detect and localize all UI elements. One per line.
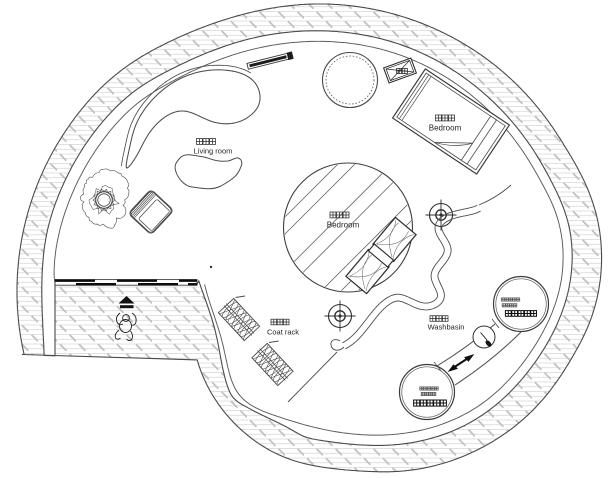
svg-text:Bedroom: Bedroom: [429, 124, 462, 133]
svg-text:Coat rack: Coat rack: [267, 328, 299, 337]
svg-text:Washbasin: Washbasin: [428, 323, 465, 332]
svg-text:Bedroom: Bedroom: [327, 221, 360, 230]
svg-text:Living room: Living room: [194, 147, 233, 156]
